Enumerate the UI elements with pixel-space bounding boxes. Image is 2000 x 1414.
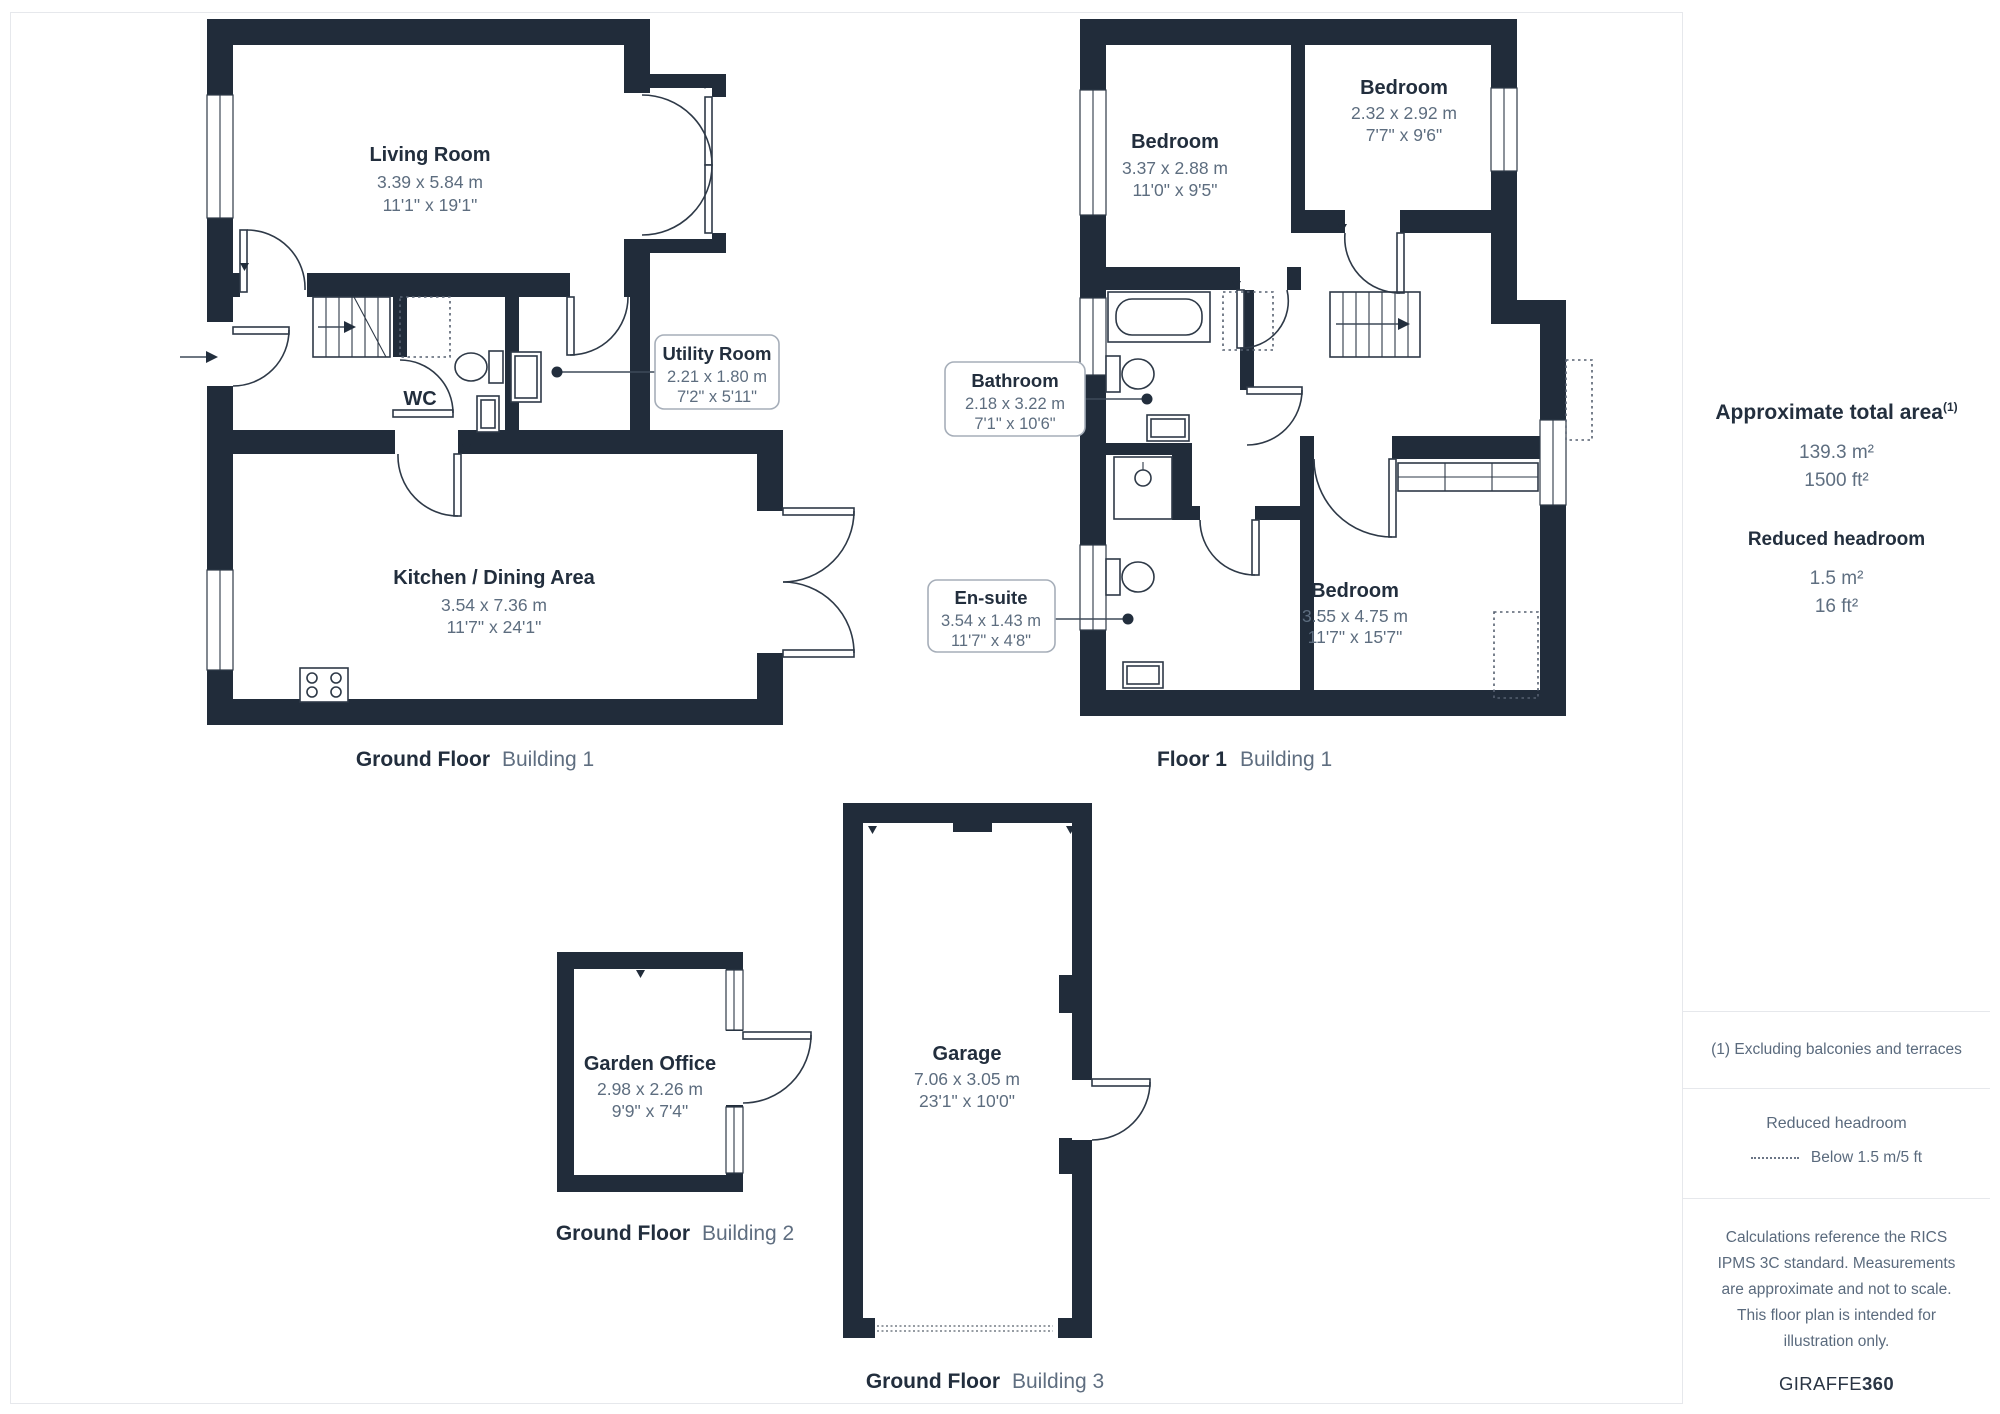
door bbox=[1345, 233, 1404, 293]
total-area-imperial: 1500 ft² bbox=[1683, 467, 1990, 495]
room-dim-metric: 2.98 x 2.26 m bbox=[597, 1079, 703, 1099]
floor-caption-bold: Ground Floor bbox=[866, 1370, 1000, 1393]
entrance-door bbox=[233, 327, 289, 386]
toilet-glyph bbox=[1106, 356, 1154, 392]
brand-regular: GIRAFFE bbox=[1779, 1373, 1862, 1394]
legend-section: Reduced headroom Below 1.5 m/5 ft bbox=[1683, 1088, 1990, 1198]
room-dim-imperial: 7'7" x 9'6" bbox=[1366, 125, 1443, 145]
ground-floor-building2-plan: Garden Office 2.98 x 2.26 m 9'9" x 7'4" … bbox=[556, 952, 811, 1245]
room-dim-imperial: 11'7" x 24'1" bbox=[447, 617, 542, 637]
svg-text:7'2" x 5'11": 7'2" x 5'11" bbox=[677, 388, 757, 406]
washer-glyph bbox=[511, 352, 541, 402]
garage-door-opening bbox=[877, 1326, 1053, 1331]
stove-glyph bbox=[300, 668, 348, 702]
svg-text:Bathroom: Bathroom bbox=[971, 370, 1058, 391]
utility-room-callout: Utility Room 2.21 x 1.80 m 7'2" x 5'11" bbox=[552, 335, 780, 409]
floor-caption-bold: Floor 1 bbox=[1157, 748, 1227, 771]
reduced-headroom-imperial: 16 ft² bbox=[1683, 593, 1990, 621]
room-dim-metric: 7.06 x 3.05 m bbox=[914, 1069, 1020, 1089]
room-dim-metric: 3.55 x 4.75 m bbox=[1302, 606, 1408, 626]
reduced-headroom-area bbox=[1566, 360, 1592, 440]
floorplan-page: Living Room 3.39 x 5.84 m 11'1" x 19'1" … bbox=[0, 0, 2000, 1414]
total-area-metric: 139.3 m² bbox=[1683, 439, 1990, 467]
door bbox=[1237, 290, 1288, 348]
footnote-text: (1) Excluding balconies and terraces bbox=[1711, 1041, 1962, 1059]
door bbox=[726, 1031, 811, 1105]
stairs-glyph bbox=[1330, 292, 1420, 357]
ground-floor-building1-plan: Living Room 3.39 x 5.84 m 11'1" x 19'1" … bbox=[180, 19, 854, 771]
room-dim-metric: 2.32 x 2.92 m bbox=[1351, 103, 1457, 123]
svg-text:Utility Room: Utility Room bbox=[663, 343, 772, 364]
room-label: WC bbox=[403, 388, 436, 410]
brand-bold: 360 bbox=[1862, 1373, 1894, 1394]
room-dim-imperial: 23'1" x 10'0" bbox=[919, 1091, 1015, 1111]
double-door bbox=[783, 508, 854, 657]
giraffe360-logo: GIRAFFE360 bbox=[1707, 1371, 1966, 1397]
door bbox=[1092, 1079, 1150, 1140]
total-area-section: Approximate total area(1) 139.3 m² 1500 … bbox=[1683, 12, 1990, 1011]
room-label: Kitchen / Dining Area bbox=[393, 567, 595, 589]
door bbox=[1200, 520, 1259, 575]
svg-text:En-suite: En-suite bbox=[955, 587, 1028, 608]
room-dim-imperial: 9'9" x 7'4" bbox=[612, 1101, 689, 1121]
floor-caption-bold: Ground Floor bbox=[356, 748, 490, 771]
sink-glyph bbox=[477, 396, 499, 432]
svg-text:3.54 x 1.43 m: 3.54 x 1.43 m bbox=[941, 612, 1041, 630]
room-label: Bedroom bbox=[1311, 580, 1399, 602]
floor-caption-building: Building 2 bbox=[702, 1222, 794, 1245]
room-dim-metric: 3.54 x 7.36 m bbox=[441, 595, 547, 615]
bathtub-glyph bbox=[1108, 292, 1210, 342]
double-door bbox=[642, 95, 712, 235]
svg-text:11'7" x 4'8": 11'7" x 4'8" bbox=[951, 632, 1031, 650]
floor-caption-building: Building 1 bbox=[502, 748, 594, 771]
room-dim-metric: 3.39 x 5.84 m bbox=[377, 172, 483, 192]
disclaimer-text: Calculations reference the RICS IPMS 3C … bbox=[1718, 1229, 1956, 1350]
reduced-headroom-metric: 1.5 m² bbox=[1683, 565, 1990, 593]
door bbox=[240, 230, 305, 292]
info-sidebar: Approximate total area(1) 139.3 m² 1500 … bbox=[1682, 12, 1990, 1404]
reduced-headroom-title: Reduced headroom bbox=[1683, 529, 1990, 551]
room-label: Garage bbox=[933, 1043, 1002, 1065]
room-label: Living Room bbox=[369, 144, 490, 166]
sink-glyph bbox=[1147, 415, 1189, 441]
wardrobe-glyph bbox=[1398, 463, 1538, 491]
total-area-title-text: Approximate total area bbox=[1715, 401, 1943, 424]
room-dim-imperial: 11'7" x 15'7" bbox=[1308, 627, 1403, 647]
toilet-glyph bbox=[1106, 559, 1154, 595]
total-area-footnote-ref: (1) bbox=[1943, 400, 1958, 414]
window-glyph bbox=[207, 95, 233, 670]
floor-caption-bold: Ground Floor bbox=[556, 1222, 690, 1245]
floor-caption-building: Building 3 bbox=[1012, 1370, 1104, 1393]
floorplans-canvas: Living Room 3.39 x 5.84 m 11'1" x 19'1" … bbox=[0, 0, 1682, 1414]
shower-glyph bbox=[1114, 457, 1172, 519]
svg-text:2.21 x 1.80 m: 2.21 x 1.80 m bbox=[667, 368, 767, 386]
sink-glyph bbox=[1123, 662, 1163, 688]
floor-caption-building: Building 1 bbox=[1240, 748, 1332, 771]
room-dim-imperial: 11'0" x 9'5" bbox=[1133, 180, 1218, 200]
room-label: Garden Office bbox=[584, 1053, 716, 1075]
legend-label: Below 1.5 m/5 ft bbox=[1811, 1149, 1922, 1167]
reduced-headroom-area bbox=[400, 297, 450, 357]
svg-text:2.18 x 3.22 m: 2.18 x 3.22 m bbox=[965, 395, 1065, 413]
room-label: Bedroom bbox=[1131, 131, 1219, 153]
floor1-building1-plan: Bedroom 3.37 x 2.88 m 11'0" x 9'5" Bedro… bbox=[928, 19, 1592, 771]
room-dim-imperial: 11'1" x 19'1" bbox=[383, 195, 478, 215]
legend-title: Reduced headroom bbox=[1683, 1115, 1990, 1133]
door bbox=[398, 454, 461, 516]
room-label: Bedroom bbox=[1360, 77, 1448, 99]
disclaimer-section: Calculations reference the RICS IPMS 3C … bbox=[1683, 1198, 1990, 1404]
room-dim-metric: 3.37 x 2.88 m bbox=[1122, 158, 1228, 178]
reduced-headroom-area bbox=[1494, 612, 1538, 698]
total-area-title: Approximate total area(1) bbox=[1683, 400, 1990, 425]
entrance-arrow-icon bbox=[180, 351, 218, 363]
stairs-glyph bbox=[313, 297, 390, 357]
svg-text:7'1" x 10'6": 7'1" x 10'6" bbox=[974, 415, 1055, 433]
toilet-glyph bbox=[455, 351, 503, 383]
door bbox=[1247, 387, 1302, 445]
dotted-line-icon bbox=[1751, 1157, 1799, 1159]
door bbox=[1314, 459, 1396, 537]
footnote-section: (1) Excluding balconies and terraces bbox=[1683, 1011, 1990, 1088]
door bbox=[567, 297, 628, 355]
ground-floor-building3-plan: Garage 7.06 x 3.05 m 23'1" x 10'0" Groun… bbox=[843, 803, 1150, 1393]
